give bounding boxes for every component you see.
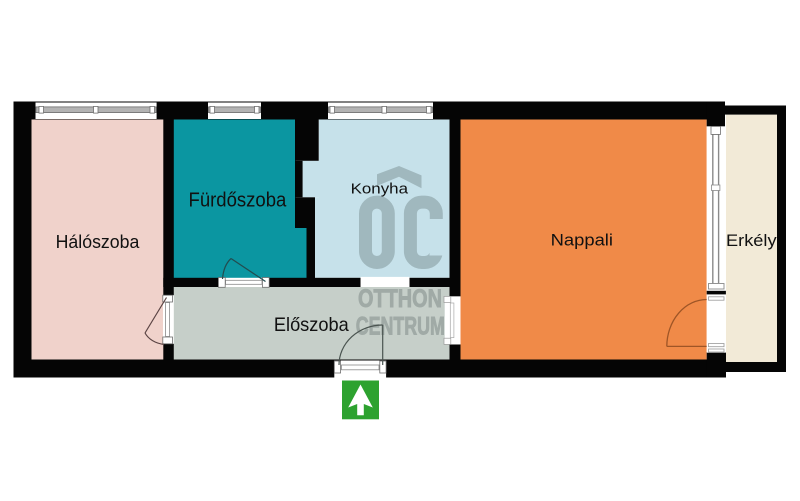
svg-text:Hálószoba: Hálószoba xyxy=(56,231,141,253)
svg-text:OTTHON: OTTHON xyxy=(358,284,442,313)
svg-text:Fürdőszoba: Fürdőszoba xyxy=(188,189,286,212)
svg-text:Előszoba: Előszoba xyxy=(274,314,349,336)
svg-text:Nappali: Nappali xyxy=(551,230,613,249)
svg-text:CENTRUM: CENTRUM xyxy=(356,311,445,340)
svg-text:Erkély: Erkély xyxy=(726,231,777,250)
svg-text:Konyha: Konyha xyxy=(351,181,409,197)
